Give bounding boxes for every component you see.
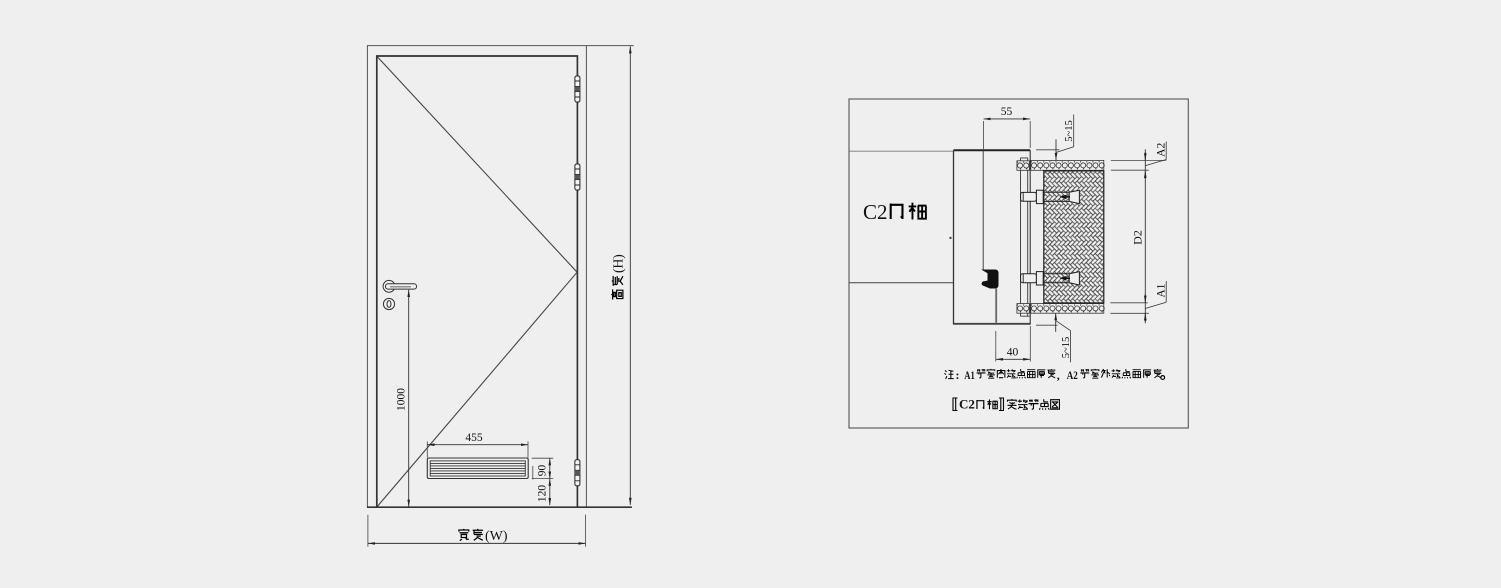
svg-text:55: 55 (1001, 106, 1013, 118)
svg-text:C2: C2 (863, 200, 888, 224)
svg-text:1000: 1000 (396, 388, 408, 411)
svg-text:A1: A1 (964, 368, 975, 382)
svg-text:(H): (H) (610, 254, 625, 273)
svg-text:5~15: 5~15 (1064, 120, 1075, 141)
svg-text:C2: C2 (959, 397, 975, 412)
svg-text:455: 455 (465, 432, 483, 444)
svg-text:D2: D2 (1131, 230, 1145, 245)
svg-text:(W): (W) (485, 529, 508, 544)
svg-text:40: 40 (1007, 347, 1019, 359)
svg-text:5~15: 5~15 (1061, 337, 1072, 358)
svg-text:120: 120 (537, 485, 549, 503)
svg-text:A2: A2 (1067, 368, 1078, 382)
svg-text::: : (956, 368, 960, 382)
svg-text:,: , (1057, 368, 1060, 382)
svg-text:90: 90 (537, 465, 549, 477)
